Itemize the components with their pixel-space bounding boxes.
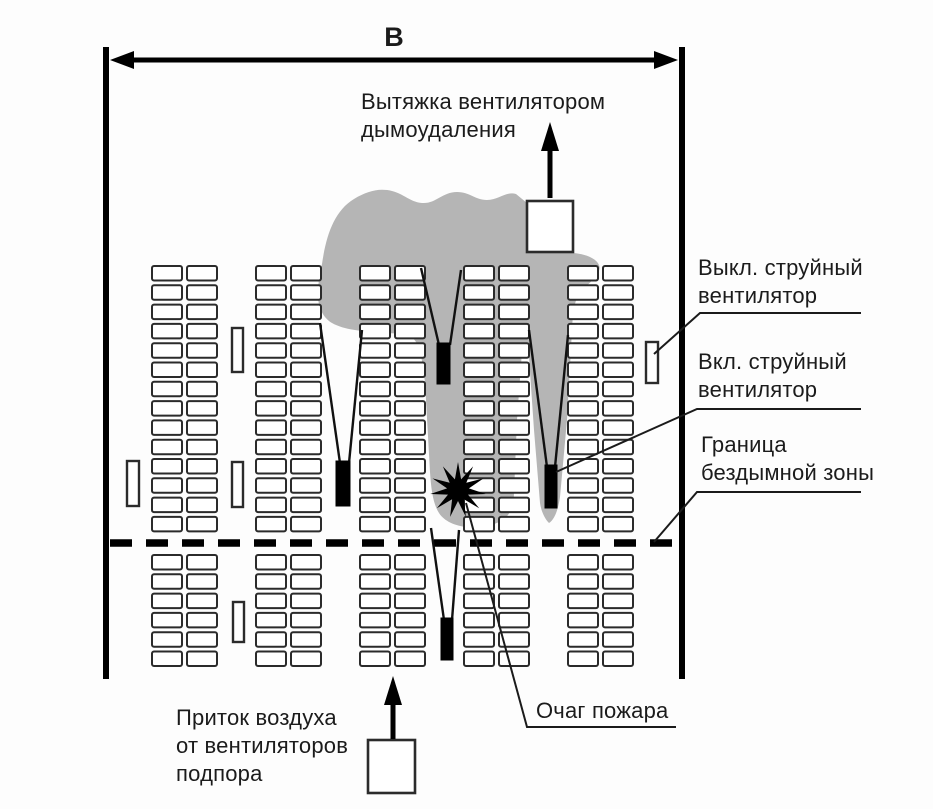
parking-stall (291, 285, 321, 300)
parking-stall (291, 498, 321, 512)
parking-stall (360, 652, 390, 667)
parking-stall (256, 498, 286, 512)
parking-stall (568, 420, 598, 435)
parking-stall (360, 459, 390, 474)
parking-stall (395, 440, 425, 455)
jet-fan-off-icon (232, 462, 243, 507)
parking-stall (603, 632, 633, 647)
parking-stall (187, 285, 217, 300)
parking-stall (603, 363, 633, 378)
parking-stall (360, 266, 390, 281)
parking-stall (291, 324, 321, 339)
parking-stall (187, 574, 217, 589)
parking-stall (499, 652, 529, 667)
smoke-free-boundary-label: Граница бездымной зоны (701, 431, 874, 487)
parking-stall (256, 613, 286, 628)
parking-stall (499, 574, 529, 589)
jet-fan-on-label: Вкл. струйный вентилятор (698, 348, 847, 404)
parking-stall (256, 459, 286, 474)
parking-stall (499, 440, 529, 455)
parking-stall (603, 305, 633, 320)
parking-stall (568, 632, 598, 647)
parking-stall (464, 343, 494, 358)
width-dimension-label: В (364, 24, 424, 51)
parking-stall (464, 459, 494, 474)
exhaust-fan-label: Вытяжка вентилятором дымоудаления (361, 88, 605, 144)
parking-stall (360, 440, 390, 455)
parking-stall (360, 613, 390, 628)
parking-stall (603, 401, 633, 416)
parking-stall (464, 613, 494, 628)
parking-stall (291, 478, 321, 493)
parking-stall (152, 382, 182, 397)
parking-stall (360, 555, 390, 570)
supply-fan-box (368, 740, 415, 793)
parking-stall (256, 555, 286, 570)
parking-stall (464, 285, 494, 300)
parking-stall (187, 363, 217, 378)
parking-stall (395, 594, 425, 609)
parking-stall (187, 594, 217, 609)
parking-stall (256, 266, 286, 281)
jet-fan-off-icon (127, 461, 139, 506)
parking-stall (152, 478, 182, 493)
parking-stall (499, 555, 529, 570)
parking-stall (187, 498, 217, 512)
parking-stall (499, 324, 529, 339)
parking-stall (291, 459, 321, 474)
parking-stall (256, 285, 286, 300)
parking-stall (256, 652, 286, 667)
parking-stall (603, 459, 633, 474)
parking-stall (603, 440, 633, 455)
parking-stall (187, 324, 217, 339)
parking-stall (464, 382, 494, 397)
parking-stall (291, 266, 321, 281)
parking-stall (464, 266, 494, 281)
parking-stall (152, 266, 182, 281)
parking-stall (152, 440, 182, 455)
parking-stall (360, 632, 390, 647)
parking-stall (499, 478, 529, 493)
parking-stall (187, 652, 217, 667)
parking-stall (499, 343, 529, 358)
parking-stall (395, 478, 425, 493)
parking-stall (395, 363, 425, 378)
parking-stall (464, 652, 494, 667)
parking-stall (256, 305, 286, 320)
parking-stall (187, 420, 217, 435)
parking-stall (603, 343, 633, 358)
parking-stall (395, 632, 425, 647)
parking-stall (360, 401, 390, 416)
jet-fan-on-icon (336, 461, 350, 506)
parking-stall (395, 613, 425, 628)
parking-stall (152, 363, 182, 378)
parking-stall (256, 401, 286, 416)
parking-stall (568, 305, 598, 320)
parking-stall (464, 324, 494, 339)
parking-stall (256, 363, 286, 378)
parking-stall (568, 363, 598, 378)
parking-stall (291, 613, 321, 628)
parking-stall (152, 343, 182, 358)
parking-stall (360, 305, 390, 320)
parking-stall (603, 266, 633, 281)
parking-stall (568, 440, 598, 455)
parking-stall (187, 555, 217, 570)
parking-stall (360, 420, 390, 435)
parking-stall (395, 401, 425, 416)
exhaust-fan-box (527, 201, 573, 252)
parking-stall (568, 613, 598, 628)
parking-stall (152, 613, 182, 628)
parking-stall (499, 266, 529, 281)
parking-stall (603, 613, 633, 628)
parking-stall (568, 517, 598, 532)
parking-stall (603, 285, 633, 300)
parking-stall (152, 632, 182, 647)
parking-stall (464, 363, 494, 378)
parking-stall (360, 324, 390, 339)
parking-stall (603, 652, 633, 667)
left-wall (103, 47, 109, 679)
parking-stall (464, 440, 494, 455)
smoke-ventilation-scheme: В Вытяжка вентилятором дымоудаления Прит… (0, 0, 933, 809)
parking-stall (603, 420, 633, 435)
jet-fan-off-label: Выкл. струйный вентилятор (698, 254, 863, 310)
parking-stall (568, 266, 598, 281)
parking-stall (464, 401, 494, 416)
parking-stall (291, 382, 321, 397)
parking-stall (360, 363, 390, 378)
parking-stall (152, 574, 182, 589)
parking-stall (256, 632, 286, 647)
parking-stall (187, 613, 217, 628)
parking-stall (499, 363, 529, 378)
parking-stall (395, 555, 425, 570)
jet-fan-on-icon (545, 465, 557, 508)
parking-stall (291, 440, 321, 455)
parking-stall (395, 305, 425, 320)
parking-stall (395, 459, 425, 474)
parking-stall (568, 382, 598, 397)
parking-stall (152, 459, 182, 474)
parking-stall (187, 343, 217, 358)
parking-stall (395, 382, 425, 397)
parking-stall (256, 420, 286, 435)
parking-stall (256, 324, 286, 339)
parking-stall (187, 382, 217, 397)
parking-stall (499, 594, 529, 609)
parking-stall (152, 555, 182, 570)
parking-stall (360, 517, 390, 532)
parking-stall (291, 517, 321, 532)
callout-boundary (654, 492, 861, 542)
parking-stall (291, 363, 321, 378)
parking-stall (568, 594, 598, 609)
parking-stall (256, 382, 286, 397)
parking-stall (291, 574, 321, 589)
parking-stall (603, 324, 633, 339)
parking-stall (603, 517, 633, 532)
parking-stall (152, 324, 182, 339)
parking-stall (291, 652, 321, 667)
parking-stall (499, 498, 529, 512)
parking-stall (152, 498, 182, 512)
parking-stall (395, 517, 425, 532)
parking-stall (360, 594, 390, 609)
parking-stall (152, 285, 182, 300)
parking-stall (603, 555, 633, 570)
parking-stall (395, 574, 425, 589)
parking-stall (152, 652, 182, 667)
parking-stall (568, 652, 598, 667)
parking-stall (360, 343, 390, 358)
parking-stall (603, 498, 633, 512)
parking-stall (499, 517, 529, 532)
parking-stall (187, 305, 217, 320)
parking-stall (256, 574, 286, 589)
parking-stall (603, 574, 633, 589)
parking-stall (499, 382, 529, 397)
parking-stall (568, 285, 598, 300)
parking-stall (152, 401, 182, 416)
jet-fan-off-icon (233, 602, 244, 642)
parking-stall (464, 555, 494, 570)
parking-stall (603, 478, 633, 493)
parking-stall (291, 555, 321, 570)
parking-stall (360, 574, 390, 589)
parking-stall (464, 305, 494, 320)
jet-fan-on-icon (437, 343, 450, 384)
parking-stall (291, 420, 321, 435)
right-wall (679, 47, 685, 679)
parking-stall (152, 420, 182, 435)
parking-stall (603, 594, 633, 609)
parking-stall (395, 324, 425, 339)
parking-stall (291, 343, 321, 358)
parking-stall (395, 498, 425, 512)
supply-arrow-icon (384, 676, 402, 739)
parking-stall (360, 478, 390, 493)
parking-stall (256, 478, 286, 493)
parking-stall (187, 440, 217, 455)
parking-stall (256, 440, 286, 455)
jet-fan-on-icon (441, 618, 453, 660)
parking-stall (395, 343, 425, 358)
parking-stall (360, 285, 390, 300)
parking-stall (499, 305, 529, 320)
parking-stall (568, 478, 598, 493)
parking-stall (568, 401, 598, 416)
parking-stall (464, 632, 494, 647)
parking-stall (291, 305, 321, 320)
parking-stall (256, 594, 286, 609)
parking-stall (603, 382, 633, 397)
parking-stall (499, 401, 529, 416)
parking-stall (464, 517, 494, 532)
parking-stall (568, 343, 598, 358)
parking-stall (187, 401, 217, 416)
parking-stall (152, 305, 182, 320)
parking-stall (291, 401, 321, 416)
parking-stall (152, 594, 182, 609)
parking-stall (395, 420, 425, 435)
jet-fan-off-icon (646, 342, 658, 383)
supply-fan-label: Приток воздуха от вентиляторов подпора (176, 704, 348, 788)
parking-stall (464, 594, 494, 609)
parking-stall (291, 632, 321, 647)
parking-stall (568, 498, 598, 512)
parking-stall (568, 574, 598, 589)
parking-stall (568, 555, 598, 570)
parking-stall (187, 517, 217, 532)
parking-stall (568, 324, 598, 339)
parking-stall (256, 517, 286, 532)
jet-fan-off-icon (232, 328, 243, 372)
parking-stall (187, 266, 217, 281)
fire-source-label: Очаг пожара (536, 697, 668, 725)
parking-stall (152, 517, 182, 532)
parking-stall (499, 285, 529, 300)
parking-stall (395, 285, 425, 300)
parking-stall (499, 459, 529, 474)
parking-stall (499, 420, 529, 435)
parking-stall (464, 420, 494, 435)
parking-stall (568, 459, 598, 474)
parking-stall (187, 478, 217, 493)
parking-stall (360, 382, 390, 397)
parking-stall (291, 594, 321, 609)
parking-stall (499, 613, 529, 628)
parking-stall (395, 652, 425, 667)
parking-stall (360, 498, 390, 512)
parking-stall (187, 632, 217, 647)
parking-stall (256, 343, 286, 358)
parking-stall (187, 459, 217, 474)
width-dimension-arrow (110, 51, 678, 69)
